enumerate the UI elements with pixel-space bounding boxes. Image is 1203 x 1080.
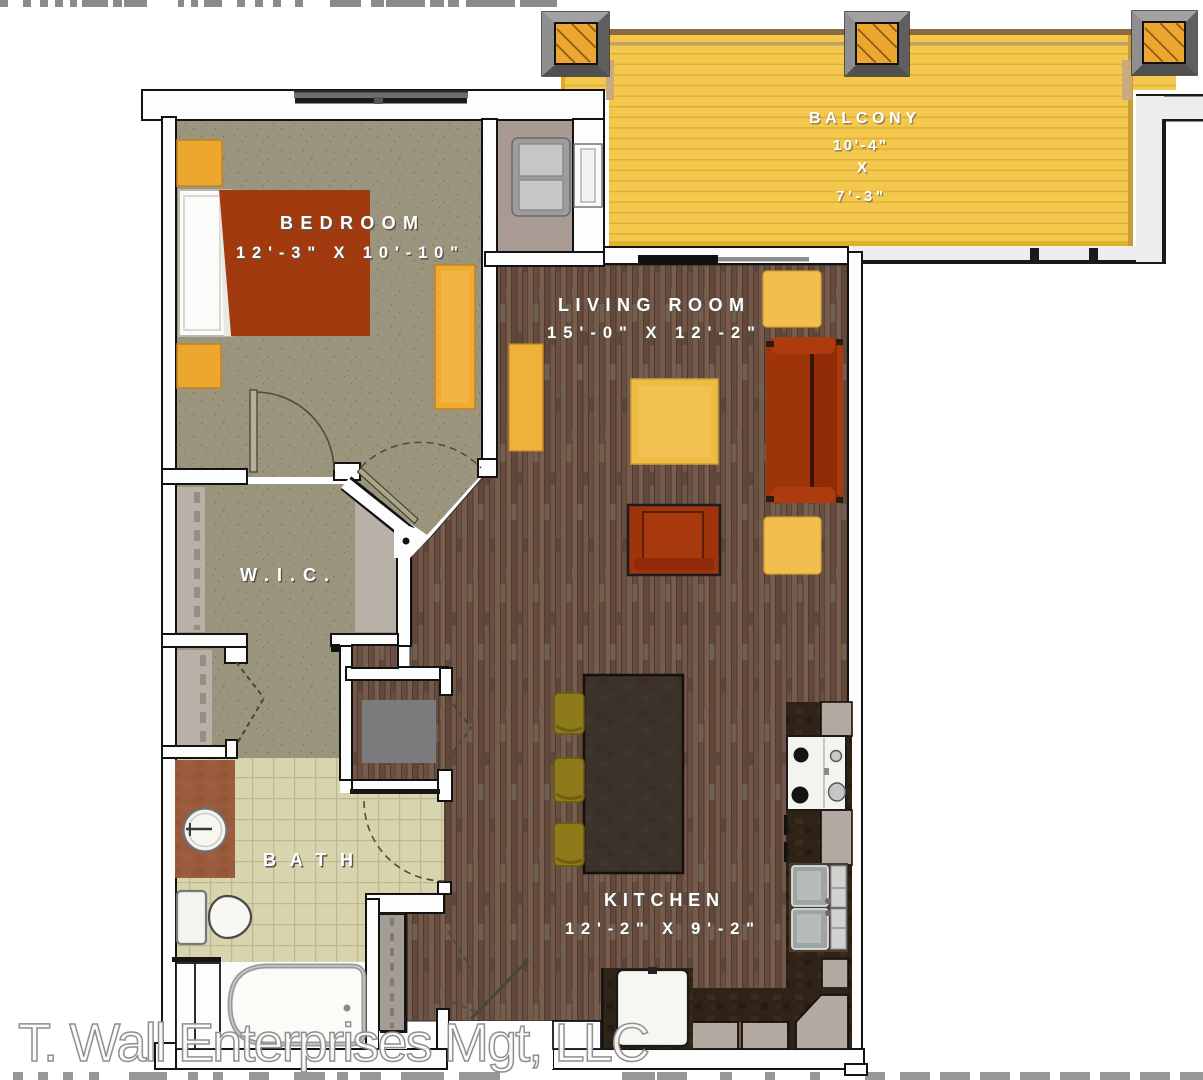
svg-text:BALCONY: BALCONY [809,110,916,127]
svg-text:7'-3": 7'-3" [836,188,883,205]
svg-text:T. Wall Enterprises Mgt, LLC: T. Wall Enterprises Mgt, LLC [18,1013,650,1073]
svg-text:X: X [857,159,867,176]
